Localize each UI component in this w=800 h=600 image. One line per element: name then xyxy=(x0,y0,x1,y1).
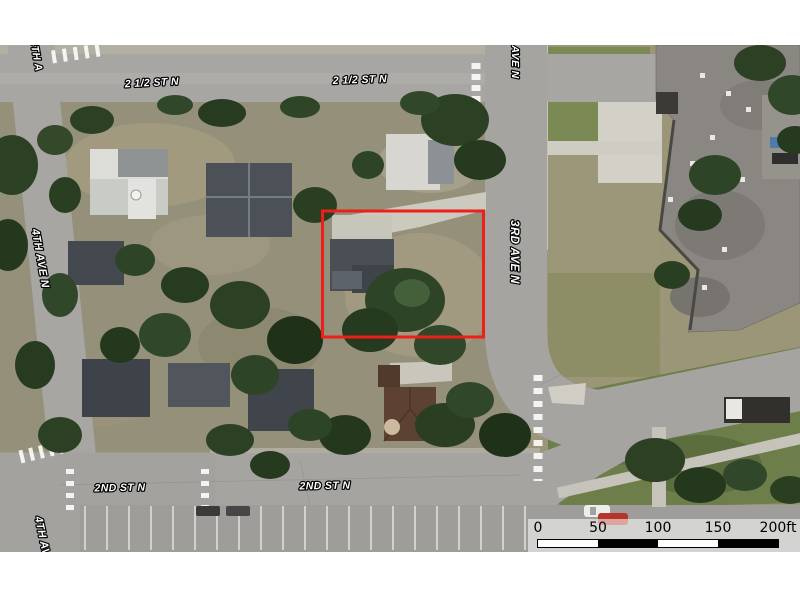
scale-tick-0: 0 xyxy=(534,520,543,536)
scale-tick-100: 100 xyxy=(645,520,672,536)
scale-tick-50: 50 xyxy=(589,520,607,536)
scale-tick-150: 150 xyxy=(705,520,732,536)
scale-tick-200ft: 200ft xyxy=(760,520,797,536)
scale-bar-segments xyxy=(537,539,779,548)
listing-map-image: 2 1/2 ST N 2 1/2 ST N AVE N 4TH A 4TH AV… xyxy=(0,0,800,600)
street-label-second-st-n-east: 2ND ST N xyxy=(298,480,350,493)
street-label-ave-n-top: AVE N xyxy=(509,45,521,79)
street-label-third-ave-n: 3RD AVE N xyxy=(508,220,520,284)
aerial-imagery: 2 1/2 ST N 2 1/2 ST N AVE N 4TH A 4TH AV… xyxy=(0,45,800,552)
street-label-second-st-n-west: 2ND ST N xyxy=(93,482,145,495)
scale-bar: 0 50 100 150 200ft xyxy=(528,519,800,552)
street-label-two-half-st-n-east: 2 1/2 ST N xyxy=(332,73,388,87)
satellite-map: 2 1/2 ST N 2 1/2 ST N AVE N 4TH A 4TH AV… xyxy=(0,45,800,552)
